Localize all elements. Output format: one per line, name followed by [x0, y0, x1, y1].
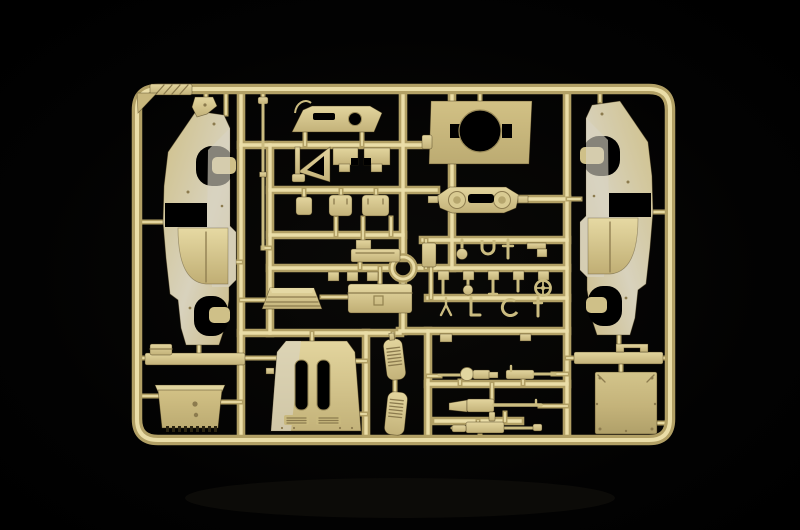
turret-roof-plate: [422, 101, 532, 164]
hatch-small-part: [296, 197, 312, 215]
photo-background: [0, 0, 800, 530]
toothed-glacis-plate: [155, 385, 225, 432]
hatch-cover-1: [329, 195, 352, 216]
stowage-box-part: [348, 284, 412, 313]
photo-stage: Studio product photograph of an injectio…: [0, 0, 800, 530]
rear-armour-plate: [595, 372, 657, 434]
sprue-photo: Studio product photograph of an injectio…: [0, 0, 800, 530]
louver-grille-2: [384, 391, 408, 436]
floor-reflection: [185, 478, 615, 518]
hatch-cover-2: [362, 195, 389, 216]
engine-hood-part: [266, 341, 361, 431]
ribbed-canopy-part: [262, 288, 322, 309]
